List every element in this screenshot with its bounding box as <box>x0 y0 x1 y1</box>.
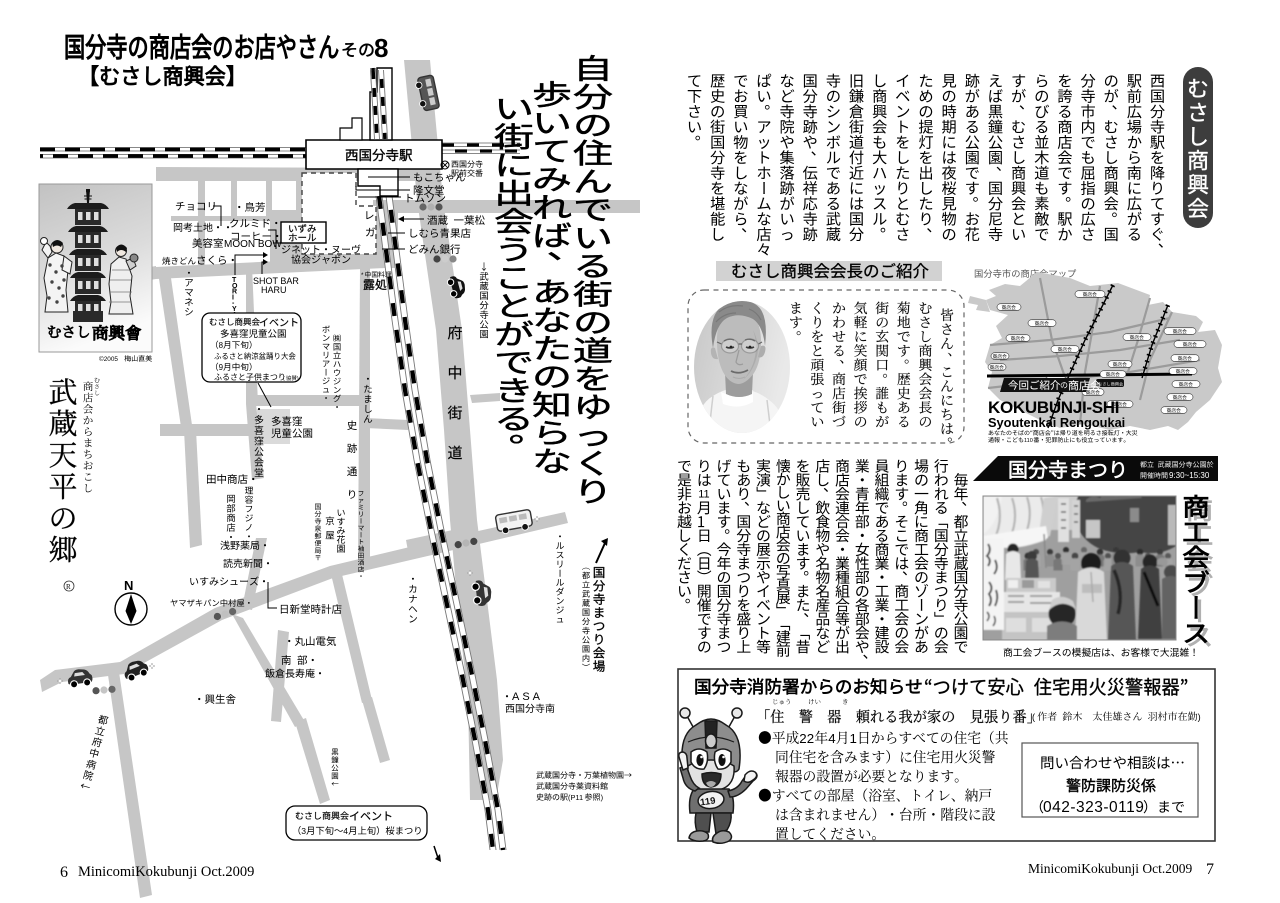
svg-text:R: R <box>66 583 71 591</box>
svg-text:): ) <box>1198 712 1201 722</box>
svg-text:7: 7 <box>1206 861 1214 878</box>
svg-text:HARU: HARU <box>261 285 287 295</box>
svg-text:1: 1 <box>850 731 857 746</box>
svg-text:): ) <box>297 376 299 382</box>
svg-text:(: ( <box>283 376 285 382</box>
svg-text:9:30~15:30: 9:30~15:30 <box>1169 471 1210 480</box>
svg-text:4: 4 <box>828 731 835 746</box>
svg-text:3: 3 <box>301 826 306 836</box>
svg-text:11: 11 <box>698 488 709 500</box>
svg-text:110: 110 <box>1024 438 1033 444</box>
svg-text:042-323-0119: 042-323-0119 <box>1043 799 1144 816</box>
svg-text:): ) <box>601 793 603 802</box>
svg-text:(P11: (P11 <box>568 793 583 802</box>
svg-text:MOON BOW: MOON BOW <box>224 239 282 250</box>
svg-text:9: 9 <box>219 363 224 372</box>
svg-text:8: 8 <box>219 341 224 350</box>
svg-text:ASA: ASA <box>512 691 543 703</box>
svg-text:6: 6 <box>60 864 68 881</box>
svg-text:MinicomiKokubunji Oct.2009: MinicomiKokubunji Oct.2009 <box>1028 861 1192 876</box>
svg-text:8: 8 <box>374 33 388 63</box>
svg-text:©2005: ©2005 <box>99 355 118 363</box>
svg-text:(: ( <box>1032 712 1035 722</box>
svg-text:119: 119 <box>700 795 717 808</box>
svg-text:22: 22 <box>799 731 814 746</box>
svg-text:N: N <box>124 578 133 593</box>
svg-text:MinicomiKokubunji Oct.2009: MinicomiKokubunji Oct.2009 <box>78 864 254 880</box>
svg-text:Syoutenkai Rengoukai: Syoutenkai Rengoukai <box>988 415 1125 430</box>
svg-text:4: 4 <box>343 826 348 836</box>
